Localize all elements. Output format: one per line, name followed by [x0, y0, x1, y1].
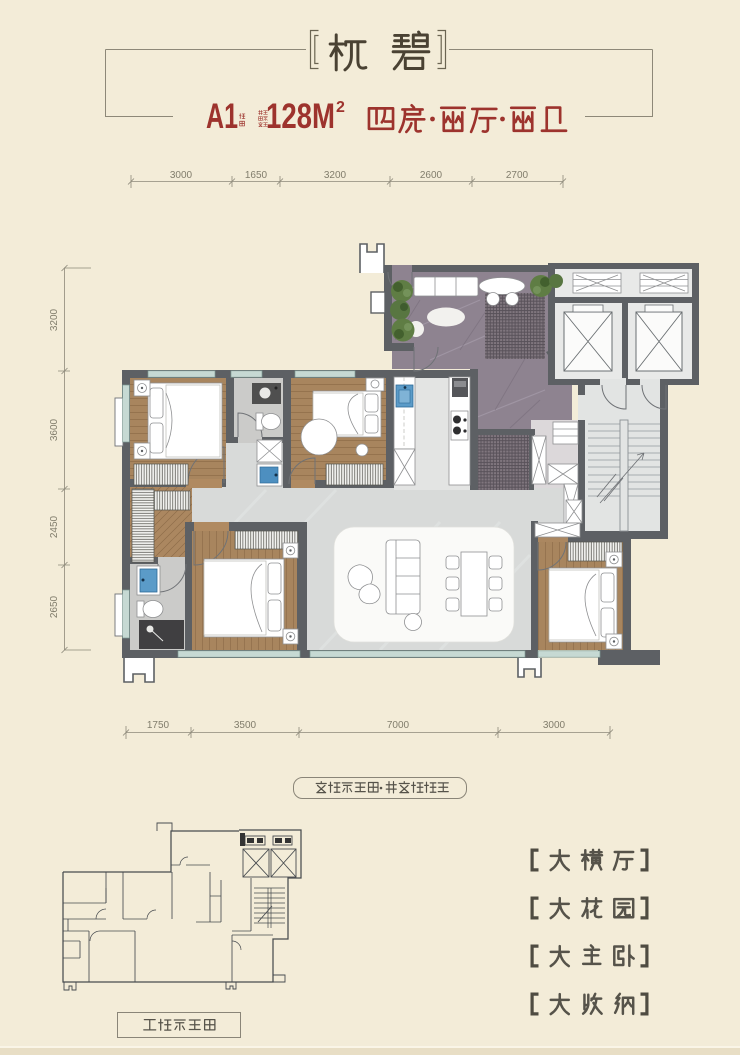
svg-text:3200: 3200	[49, 308, 60, 331]
svg-text:2650: 2650	[49, 595, 60, 618]
svg-text:3600: 3600	[49, 418, 60, 441]
svg-text:2700: 2700	[506, 170, 529, 181]
svg-text:2: 2	[336, 99, 345, 116]
svg-text:3000: 3000	[543, 720, 566, 731]
svg-text:2450: 2450	[49, 515, 60, 538]
svg-text:7000: 7000	[387, 720, 410, 731]
svg-text:1750: 1750	[147, 720, 170, 731]
svg-text:A1: A1	[206, 97, 238, 136]
svg-text:128M: 128M	[266, 97, 335, 136]
svg-text:3200: 3200	[324, 170, 347, 181]
svg-text:2600: 2600	[420, 170, 443, 181]
svg-text:3500: 3500	[234, 720, 257, 731]
svg-text:1650: 1650	[245, 170, 268, 181]
svg-text:3000: 3000	[170, 170, 193, 181]
